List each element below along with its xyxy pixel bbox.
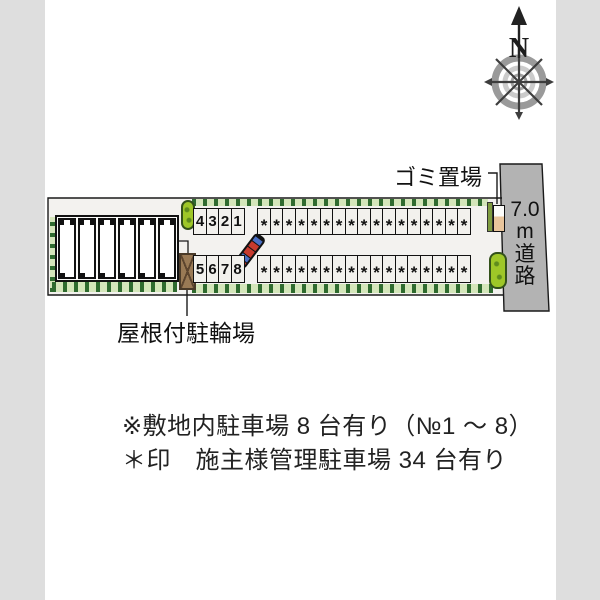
parking-space-label: 1 — [233, 213, 241, 230]
parking-row-bottom-numbered: 5678 — [193, 255, 245, 281]
notes-block: ※敷地内駐車場 8 台有り（№1 ～ 8）＊印 施主様管理駐車場 34 台有り — [122, 410, 533, 478]
hedge-building-bottom — [52, 282, 177, 292]
building-unit — [98, 218, 116, 279]
parking-space-label: 2 — [221, 213, 229, 230]
building-unit — [78, 218, 96, 279]
parking-space-label: * — [436, 263, 443, 283]
parking-space-label: * — [398, 263, 405, 283]
building-unit — [158, 218, 176, 279]
building-unit — [138, 218, 156, 279]
garbage-area-label: ゴミ置場 — [394, 160, 482, 192]
parking-space-label: * — [311, 263, 318, 283]
note-line: ※敷地内駐車場 8 台有り（№1 ～ 8） — [122, 410, 533, 444]
building-unit — [118, 218, 136, 279]
parking-space-label: * — [411, 216, 418, 236]
road-label: 7.0 m 道 路 — [502, 199, 548, 289]
building-unit — [58, 218, 76, 279]
compass-rose-icon: N — [482, 4, 554, 122]
parking-space-numbered: 1 — [231, 208, 245, 235]
bicycle-parking-label: 屋根付駐輪場 — [117, 314, 255, 348]
note-line: ＊印 施主様管理駐車場 34 台有り — [122, 444, 533, 478]
parking-space-label: * — [361, 216, 368, 236]
hedge-bottom — [192, 284, 493, 293]
parking-space-label: * — [261, 216, 268, 236]
parking-space-label: 6 — [208, 261, 216, 278]
parking-space-label: * — [461, 216, 468, 236]
right-margin-bar — [556, 0, 600, 600]
parking-space-label: * — [386, 263, 393, 283]
parking-space-label: * — [298, 263, 305, 283]
parking-space-label: * — [323, 263, 330, 283]
parking-space-label: * — [448, 216, 455, 236]
parking-space-label: * — [398, 216, 405, 236]
parking-space-label: * — [348, 216, 355, 236]
parking-space-label: * — [298, 216, 305, 236]
parking-space-label: * — [323, 216, 330, 236]
road-label-kanji-2: 路 — [515, 266, 536, 288]
parking-space-label: * — [311, 216, 318, 236]
parking-row-top-managed: ***************** — [257, 208, 471, 233]
parking-space-label: * — [448, 263, 455, 283]
parking-space-label: 5 — [196, 261, 204, 278]
parking-space-managed: * — [457, 208, 471, 235]
parking-space-label: 7 — [221, 261, 229, 278]
parking-space-label: 3 — [208, 213, 216, 230]
parking-space-label: * — [373, 216, 380, 236]
parking-space-label: * — [348, 263, 355, 283]
building-block — [55, 215, 179, 282]
left-margin-bar — [0, 0, 45, 600]
parking-space-managed: * — [457, 255, 471, 283]
hedge-top — [192, 199, 488, 206]
parking-space-numbered: 8 — [231, 255, 245, 283]
parking-space-label: * — [423, 216, 430, 236]
parking-space-label: 8 — [233, 261, 241, 278]
parking-space-label: * — [411, 263, 418, 283]
parking-space-label: * — [461, 263, 468, 283]
north-label: N — [509, 33, 529, 64]
parking-space-label: * — [336, 263, 343, 283]
parking-space-label: * — [336, 216, 343, 236]
parking-space-label: * — [386, 216, 393, 236]
parking-space-label: * — [423, 263, 430, 283]
parking-space-label: * — [436, 216, 443, 236]
parking-row-bottom-managed: ***************** — [257, 255, 471, 281]
parking-space-label: * — [261, 263, 268, 283]
parking-space-label: * — [273, 216, 280, 236]
parking-row-top-numbered: 4321 — [193, 208, 245, 233]
road-label-width: 7.0 — [510, 199, 539, 221]
north-arrow — [511, 6, 527, 25]
parking-space-label: * — [286, 263, 293, 283]
road-label-unit: m — [516, 221, 534, 243]
parking-space-label: * — [361, 263, 368, 283]
parking-space-label: * — [286, 216, 293, 236]
parking-space-label: * — [273, 263, 280, 283]
parking-space-label: * — [373, 263, 380, 283]
parking-space-label: 4 — [196, 213, 204, 230]
road-label-kanji-1: 道 — [515, 244, 536, 266]
